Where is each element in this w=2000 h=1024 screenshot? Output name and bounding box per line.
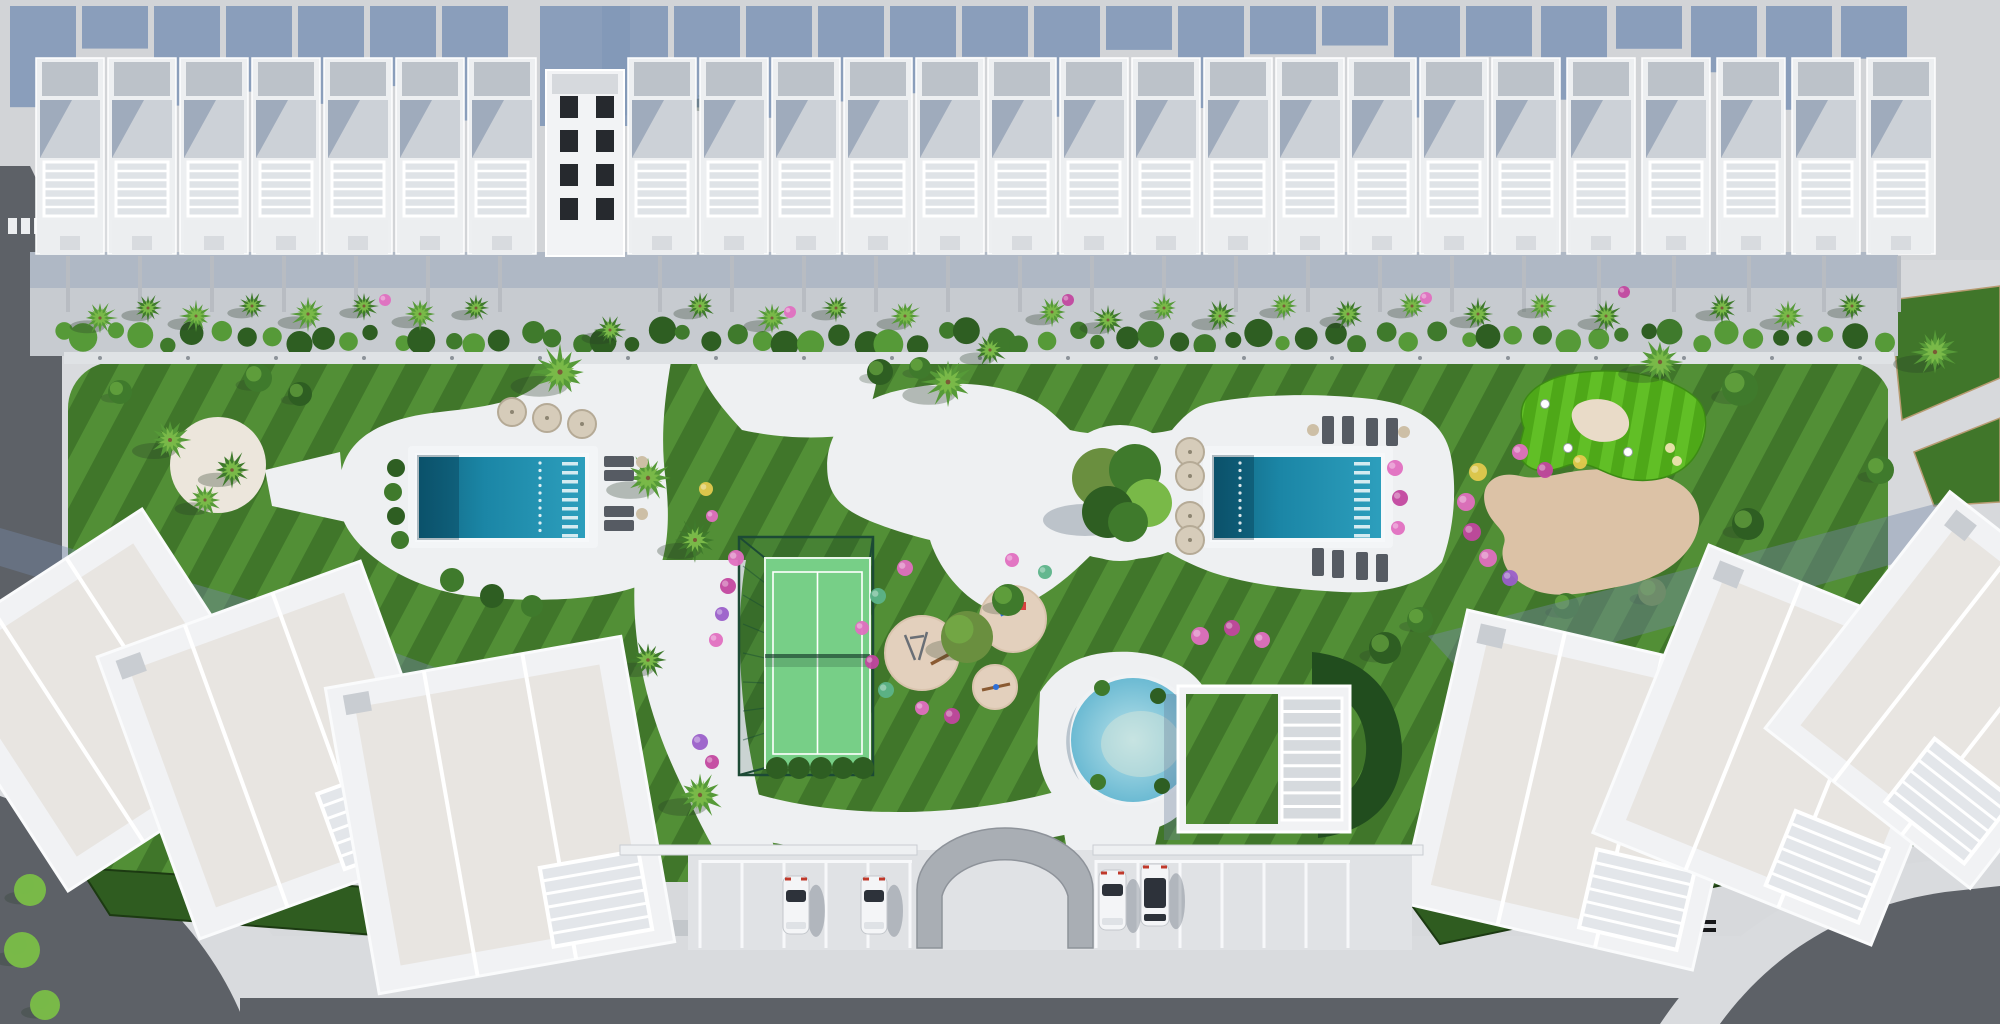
- entry-steps: [60, 236, 80, 250]
- hedge-bush: [1657, 319, 1683, 345]
- flower-bed: [699, 482, 713, 496]
- hedge-bush: [1009, 336, 1028, 355]
- bush: [1154, 778, 1170, 794]
- roof-deck: [474, 62, 530, 96]
- car-tail-light: [1118, 872, 1124, 875]
- palm-trunk: [168, 438, 172, 442]
- pool-right-lane-marker: [1238, 499, 1241, 502]
- townhouse-unit: [108, 58, 176, 254]
- hedge-bush: [1038, 332, 1056, 350]
- yard-divider: [1747, 256, 1751, 312]
- bush: [480, 584, 504, 608]
- entry-steps: [492, 236, 512, 250]
- palm-trunk: [1283, 305, 1286, 308]
- entry-steps: [1228, 236, 1248, 250]
- walkway-post: [1506, 356, 1510, 360]
- sun-lounger: [1376, 554, 1388, 582]
- walkway-post: [98, 356, 102, 360]
- pool-left-lane-marker: [538, 469, 541, 472]
- roof-deck: [258, 62, 314, 96]
- pool-right-lane-marker: [1238, 491, 1241, 494]
- flower-highlight: [1481, 552, 1488, 559]
- roof-deck: [778, 62, 834, 96]
- townhouse-unit: [1276, 58, 1344, 254]
- building-shadow-on-street: [1322, 6, 1388, 46]
- flower-bed: [1005, 553, 1019, 567]
- tree-highlight: [1725, 373, 1745, 393]
- tree-highlight: [1868, 458, 1883, 473]
- townhouse-unit: [1060, 58, 1128, 254]
- sun-lounger: [604, 470, 634, 481]
- walkway-post: [1242, 356, 1246, 360]
- hedge-bush: [1773, 330, 1789, 346]
- townhouse-unit: [1420, 58, 1488, 254]
- roof-deck: [922, 62, 978, 96]
- hedge-bush: [238, 327, 257, 346]
- car-glass: [786, 890, 806, 902]
- hedge-bush: [1693, 335, 1711, 353]
- tree-highlight: [994, 586, 1012, 604]
- flower-highlight: [899, 562, 905, 568]
- townhouse-unit: [1492, 58, 1560, 254]
- palm-trunk: [1219, 315, 1222, 318]
- bush: [387, 507, 405, 525]
- parasol-pole: [1188, 514, 1192, 518]
- sun-lounger: [1386, 418, 1398, 446]
- car-tail-light: [1101, 872, 1107, 875]
- sun-lounger: [1342, 416, 1354, 444]
- aerial-render-canvas: [0, 0, 2000, 1024]
- flower-highlight: [880, 684, 886, 690]
- yard-divider: [874, 256, 878, 312]
- hedge-bush: [1797, 330, 1813, 346]
- entry-steps: [1741, 236, 1761, 250]
- building-shadow-on-street: [1466, 6, 1532, 56]
- sun-lounger: [1322, 416, 1334, 444]
- palm-trunk: [1721, 307, 1724, 310]
- side-table: [636, 508, 648, 520]
- car-tail-light: [801, 878, 807, 881]
- backyard-shadow: [30, 252, 1898, 288]
- yard-divider: [1234, 256, 1238, 312]
- roof-deck: [1498, 62, 1554, 96]
- palm-trunk: [230, 468, 234, 472]
- flower-highlight: [1459, 496, 1466, 503]
- flower-bed: [1254, 632, 1270, 648]
- palm-trunk: [835, 307, 838, 310]
- tree-highlight: [911, 359, 923, 371]
- parasol-pole: [1188, 450, 1192, 454]
- pool-left-lane-marker: [538, 484, 541, 487]
- car-shadow: [885, 885, 903, 937]
- sun-lounger: [604, 456, 634, 467]
- townhouse-unit: [1717, 58, 1785, 254]
- walkway-post: [538, 356, 542, 360]
- golf-hole: [1541, 400, 1550, 409]
- flower-highlight: [381, 296, 386, 301]
- tree-highlight: [32, 992, 49, 1009]
- hedge-bush: [1533, 326, 1552, 345]
- yard-divider: [1378, 256, 1382, 312]
- flower-bed: [865, 655, 879, 669]
- building-shadow-on-street: [1616, 6, 1682, 49]
- flower-bed: [944, 708, 960, 724]
- roof-deck: [402, 62, 458, 96]
- palm-trunk: [1541, 305, 1544, 308]
- car-windshield: [786, 922, 806, 929]
- building-shadow-on-street: [1106, 6, 1172, 50]
- tree-highlight: [290, 384, 303, 397]
- flower-highlight: [717, 609, 723, 615]
- padel-border-bush: [788, 757, 810, 779]
- townhouse-unit: [628, 58, 696, 254]
- hedge-bush: [263, 327, 282, 346]
- roof-deck: [114, 62, 170, 96]
- padel-net: [765, 654, 870, 658]
- entry-steps: [1591, 236, 1611, 250]
- flower-highlight: [730, 552, 736, 558]
- hedge-bush: [446, 333, 462, 349]
- bush: [1150, 688, 1166, 704]
- flower-bed: [715, 607, 729, 621]
- townhouse-unit: [468, 58, 536, 254]
- pool-left-lane-marker: [538, 476, 541, 479]
- townhouse-unit: [916, 58, 984, 254]
- entry-steps: [868, 236, 888, 250]
- parasol-pole: [510, 410, 514, 414]
- flower-bed: [692, 734, 708, 750]
- pool-right-lane-marker: [1238, 484, 1241, 487]
- flower-highlight: [1539, 464, 1545, 470]
- hedge-bush: [1116, 326, 1139, 349]
- pool-left-lane-marker: [538, 461, 541, 464]
- walkway-post: [1066, 356, 1070, 360]
- yard-divider: [66, 256, 70, 312]
- palm-trunk: [419, 313, 422, 316]
- flower-highlight: [1193, 630, 1200, 637]
- tall-building-window: [560, 164, 578, 186]
- padel-border-bush: [852, 757, 874, 779]
- entry-steps: [1156, 236, 1176, 250]
- yard-divider: [1672, 256, 1676, 312]
- bush: [391, 531, 409, 549]
- entry-steps: [724, 236, 744, 250]
- pool-right-lane-marker: [1238, 506, 1241, 509]
- palm-trunk: [1605, 315, 1608, 318]
- walkway-post: [802, 356, 806, 360]
- entry-steps: [204, 236, 224, 250]
- roof-deck: [1648, 62, 1704, 96]
- roof-deck: [1282, 62, 1338, 96]
- flower-bed: [878, 682, 894, 698]
- flower-bed: [1062, 294, 1074, 306]
- side-table: [1307, 424, 1319, 436]
- palm-trunk: [771, 317, 774, 320]
- entry-steps: [1516, 236, 1536, 250]
- hedge-bush: [1743, 328, 1763, 348]
- hedge-bush: [312, 327, 335, 350]
- flower-highlight: [1620, 288, 1625, 293]
- hedge-bush: [1295, 327, 1318, 350]
- parking-bay-header: [1096, 860, 1350, 863]
- walkway-post: [186, 356, 190, 360]
- palm-trunk: [904, 315, 907, 318]
- parasol-pole: [1188, 538, 1192, 542]
- car-glass: [1102, 884, 1123, 896]
- sun-lounger: [1312, 548, 1324, 576]
- yard-divider: [658, 256, 662, 312]
- palm-trunk: [1347, 313, 1350, 316]
- entry-steps: [796, 236, 816, 250]
- flower-bed: [1392, 490, 1408, 506]
- car-windshield: [1102, 918, 1123, 925]
- flower-bed: [1420, 292, 1432, 304]
- sun-lounger: [604, 506, 634, 517]
- entry-steps: [132, 236, 152, 250]
- roof-deck: [1210, 62, 1266, 96]
- yard-divider: [282, 256, 286, 312]
- pool-left-lane-marker: [538, 499, 541, 502]
- tree-highlight: [7, 935, 27, 955]
- hedge-bush: [1614, 328, 1628, 342]
- flower-bed: [720, 578, 736, 594]
- roof-deck: [706, 62, 762, 96]
- yard-divider: [1450, 256, 1454, 312]
- golf-hole: [1624, 448, 1633, 457]
- yard-divider: [498, 256, 502, 312]
- flower-highlight: [701, 484, 707, 490]
- flower-bed: [784, 306, 796, 318]
- parking-bay-header: [700, 860, 912, 863]
- townhouse-unit: [1132, 58, 1200, 254]
- hedge-bush: [488, 330, 510, 352]
- flower-highlight: [917, 703, 923, 709]
- flower-highlight: [722, 580, 728, 586]
- flower-bed: [1469, 463, 1487, 481]
- hedge-bush: [543, 329, 561, 347]
- car-windshield: [864, 922, 884, 929]
- pool-left-step: [562, 480, 578, 484]
- townhouse-unit: [772, 58, 840, 254]
- flower-bed: [1038, 565, 1052, 579]
- pool-right-step: [1354, 471, 1370, 475]
- roof-deck: [1426, 62, 1482, 96]
- townhouse-unit: [1348, 58, 1416, 254]
- palm-trunk: [1787, 315, 1790, 318]
- yard-divider: [210, 256, 214, 312]
- townhouse-unit: [324, 58, 392, 254]
- flower-highlight: [1394, 492, 1400, 498]
- hedge-bush: [339, 332, 358, 351]
- entry-steps: [1666, 236, 1686, 250]
- hedge-bush: [1090, 335, 1104, 349]
- flower-highlight: [708, 512, 713, 517]
- car-tail-light: [785, 878, 791, 881]
- hedge-bush: [649, 317, 676, 344]
- roof-deck: [1138, 62, 1194, 96]
- palm-trunk: [1411, 305, 1414, 308]
- hedge-bush: [701, 331, 721, 351]
- palm-trunk: [203, 498, 206, 501]
- palm-trunk: [1658, 360, 1662, 364]
- townhouse-unit: [988, 58, 1056, 254]
- pool-left-deep-end: [417, 455, 459, 540]
- car-glass: [1144, 878, 1166, 908]
- pool-left-step: [562, 534, 578, 538]
- palm-trunk: [306, 312, 309, 315]
- flower-highlight: [1575, 457, 1581, 463]
- pool-left-lane-marker: [538, 514, 541, 517]
- flower-bed: [1512, 444, 1528, 460]
- parasol-pole: [1188, 474, 1192, 478]
- golf-ball-marker: [1665, 443, 1675, 453]
- tree-highlight: [1734, 510, 1752, 528]
- central-tree: [1108, 502, 1148, 542]
- pool-right-lane-marker: [1238, 514, 1241, 517]
- townhouse-unit: [396, 58, 464, 254]
- tree-highlight: [945, 615, 974, 644]
- hedge-bush: [212, 321, 232, 341]
- parasol-pole: [545, 416, 549, 420]
- padel-border-bush: [810, 757, 832, 779]
- palm-trunk: [251, 305, 254, 308]
- sun-lounger: [1332, 550, 1344, 578]
- tree-highlight: [110, 382, 123, 395]
- pool-left-step: [562, 471, 578, 475]
- hedge-bush: [675, 325, 690, 340]
- building-shadow-on-street: [1250, 6, 1316, 54]
- hedge-bush: [1842, 323, 1868, 349]
- roof-deck: [1723, 62, 1779, 96]
- walkway-post: [890, 356, 894, 360]
- walkway-post: [362, 356, 366, 360]
- palm-trunk: [1933, 350, 1937, 354]
- hedge-bush: [1476, 324, 1501, 349]
- palm-trunk: [699, 305, 702, 308]
- hedge-bush: [1244, 319, 1272, 347]
- townhouse-unit: [36, 58, 104, 254]
- entry-steps: [1084, 236, 1104, 250]
- walkway-post: [1418, 356, 1422, 360]
- townhouse-unit: [180, 58, 248, 254]
- padel-border-bush: [832, 757, 854, 779]
- pool-left-step: [562, 498, 578, 502]
- pool-left-step: [562, 516, 578, 520]
- entry-steps: [1891, 236, 1911, 250]
- roof-deck: [850, 62, 906, 96]
- tree-highlight: [246, 366, 261, 381]
- flower-highlight: [867, 657, 873, 663]
- entry-steps: [1300, 236, 1320, 250]
- entry-steps: [420, 236, 440, 250]
- palm-trunk: [363, 305, 366, 308]
- building-shadow-on-street: [82, 6, 148, 49]
- townhouse-unit: [844, 58, 912, 254]
- sun-lounger: [604, 520, 634, 531]
- townhouse-unit: [1867, 58, 1935, 254]
- flower-highlight: [1465, 526, 1472, 533]
- building-south-west-wing: [325, 636, 674, 993]
- roof-deck: [186, 62, 242, 96]
- hedge-bush: [1503, 326, 1521, 344]
- pool-right-step: [1354, 498, 1370, 502]
- flower-bed: [1537, 462, 1553, 478]
- hedge-bush: [1714, 320, 1738, 344]
- flower-highlight: [857, 623, 863, 629]
- pool-right-lane-marker: [1238, 469, 1241, 472]
- palm-trunk: [698, 793, 702, 797]
- car-tail-light: [879, 878, 885, 881]
- townhouse-unit: [700, 58, 768, 254]
- flower-highlight: [1040, 567, 1046, 573]
- tall-building-window: [596, 96, 614, 118]
- yard-divider: [1522, 256, 1526, 312]
- flower-bed: [1479, 549, 1497, 567]
- bottom-road: [240, 998, 1740, 1024]
- pool-left-step: [562, 525, 578, 529]
- pool-right-step: [1354, 489, 1370, 493]
- walkway-post: [450, 356, 454, 360]
- pool-right-lane-marker: [1238, 476, 1241, 479]
- roof-deck: [1798, 62, 1854, 96]
- side-table: [1398, 426, 1410, 438]
- flower-bed: [1502, 570, 1518, 586]
- pool-right-lane-marker: [1238, 461, 1241, 464]
- townhouse-unit: [1792, 58, 1860, 254]
- tree-highlight: [1371, 634, 1389, 652]
- hedge-bush: [1347, 335, 1366, 354]
- entry-steps: [348, 236, 368, 250]
- palm-trunk: [946, 380, 951, 385]
- pool-left-step: [562, 507, 578, 511]
- pool-left-lane-marker: [538, 529, 541, 532]
- walkway-post: [714, 356, 718, 360]
- bush: [521, 595, 543, 617]
- hedge-bush: [828, 324, 849, 345]
- flower-bed: [728, 550, 744, 566]
- walkway-post: [1154, 356, 1158, 360]
- car-tail-light: [1161, 866, 1167, 869]
- layer-entrance-parking: [620, 828, 1423, 950]
- walkway-post: [1770, 356, 1774, 360]
- flower-highlight: [1514, 446, 1520, 452]
- hedge-bush: [1225, 332, 1241, 348]
- flower-highlight: [694, 736, 700, 742]
- bush: [440, 568, 464, 592]
- pool-left-lane-marker: [538, 491, 541, 494]
- tall-building-window: [560, 198, 578, 220]
- flower-bed: [1573, 455, 1587, 469]
- pool-right-lane-marker: [1238, 521, 1241, 524]
- flower-highlight: [1393, 523, 1399, 529]
- car-windshield: [1144, 914, 1166, 921]
- walkway-post: [1330, 356, 1334, 360]
- hedge-bush: [625, 337, 640, 352]
- flower-bed: [870, 588, 886, 604]
- yard-divider: [1897, 256, 1901, 312]
- crosswalk-stripe: [8, 218, 17, 234]
- hedge-bush: [1138, 321, 1165, 348]
- flower-bed: [1224, 620, 1240, 636]
- pool-right-step: [1354, 534, 1370, 538]
- padel-net-shadow: [765, 658, 870, 667]
- pool-right-step: [1354, 462, 1370, 466]
- palm-trunk: [646, 658, 650, 662]
- hedge-bush: [160, 338, 175, 353]
- tall-building-window: [560, 130, 578, 152]
- hedge-bush: [127, 322, 153, 348]
- flower-bed: [709, 633, 723, 647]
